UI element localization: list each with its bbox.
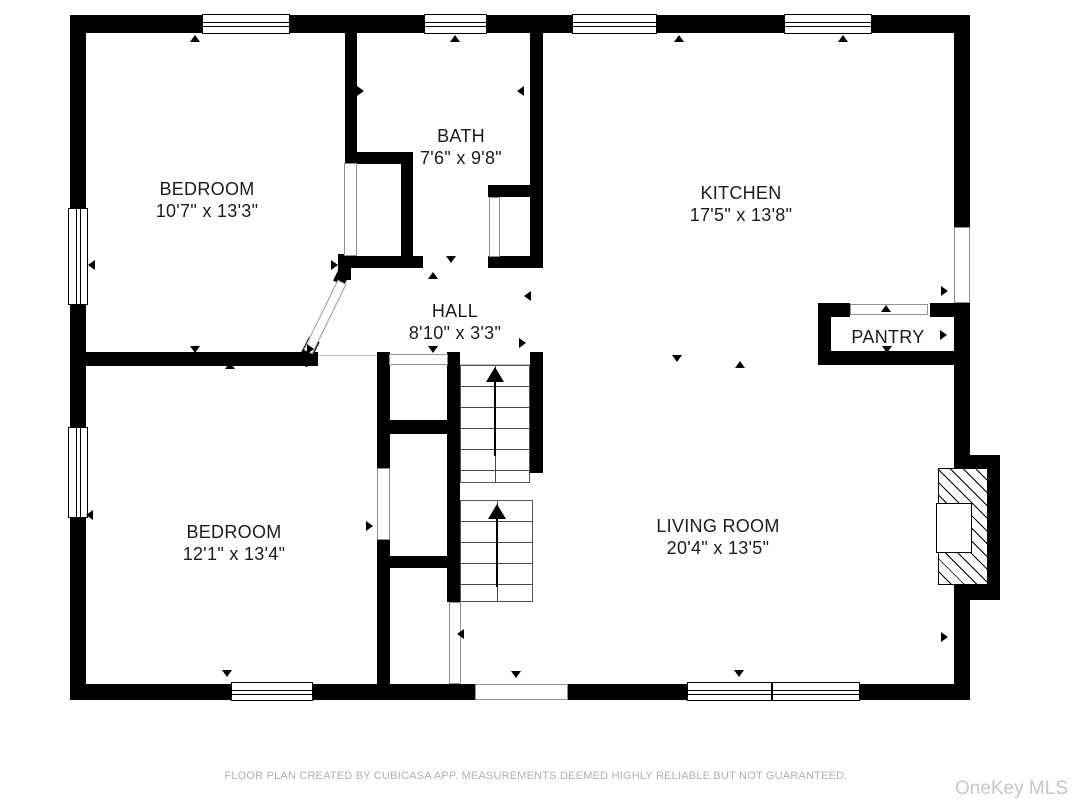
staircase-upper-flight — [460, 365, 530, 483]
window — [68, 208, 88, 305]
window — [784, 14, 872, 34]
direction-arrow — [940, 330, 947, 340]
window — [231, 682, 313, 701]
room-name: HALL — [409, 300, 501, 322]
direction-arrow — [882, 346, 892, 353]
closet-door — [449, 602, 461, 684]
direction-arrow — [941, 632, 948, 642]
direction-arrow — [735, 361, 745, 368]
direction-arrow — [838, 35, 848, 42]
room-label-hall: HALL 8'10" x 3'3" — [409, 300, 501, 344]
direction-arrow — [331, 260, 338, 270]
wall-segment — [377, 420, 460, 434]
closet-door — [344, 163, 357, 256]
direction-arrow — [446, 256, 456, 263]
direction-arrow — [881, 305, 891, 312]
direction-arrow — [519, 338, 526, 348]
direction-arrow — [190, 346, 200, 353]
direction-arrow — [674, 35, 684, 42]
room-dims: 8'10" x 3'3" — [409, 322, 501, 344]
direction-arrow — [822, 330, 829, 340]
direction-arrow — [428, 346, 438, 353]
room-dims: 10'7" x 13'3" — [156, 200, 259, 222]
wall-segment — [86, 352, 318, 366]
wall-segment — [530, 352, 543, 473]
stair-arrow — [494, 378, 496, 456]
direction-arrow — [357, 86, 364, 96]
direction-arrow — [86, 510, 93, 520]
room-name: LIVING ROOM — [656, 515, 779, 537]
room-label-bedroom-1: BEDROOM 10'7" x 13'3" — [156, 178, 259, 222]
direction-arrow — [524, 291, 531, 301]
window — [772, 682, 860, 701]
fireplace-firebox — [936, 503, 972, 553]
direction-arrow — [428, 272, 438, 279]
closet-door — [389, 354, 448, 365]
direction-arrow — [307, 344, 314, 354]
direction-arrow — [366, 521, 373, 531]
room-dims: 7'6" x 9'8" — [420, 147, 502, 169]
watermark: OneKey MLS — [955, 778, 1068, 800]
direction-arrow — [450, 35, 460, 42]
direction-arrow — [672, 355, 682, 362]
direction-arrow — [225, 362, 235, 369]
room-name: KITCHEN — [690, 182, 793, 204]
wall-segment — [377, 352, 390, 468]
exterior-door — [475, 684, 568, 700]
window — [68, 427, 88, 518]
wall-segment — [377, 556, 460, 568]
footer-disclaimer: FLOOR PLAN CREATED BY CUBICASA APP. MEAS… — [0, 770, 1072, 782]
closet-door — [377, 468, 390, 540]
room-dims: 12'1" x 13'4" — [183, 543, 286, 565]
room-name: BEDROOM — [156, 178, 259, 200]
stair-arrow — [496, 517, 498, 587]
floor-plan: BEDROOM 10'7" x 13'3" BATH 7'6" x 9'8" K… — [0, 0, 1072, 804]
threshold-line — [318, 355, 377, 356]
room-name: PANTRY — [847, 326, 929, 348]
direction-arrow — [88, 260, 95, 270]
room-label-bath: BATH 7'6" x 9'8" — [420, 125, 502, 169]
stair-arrow-head — [488, 504, 506, 519]
wall-segment — [488, 185, 532, 197]
window — [687, 682, 772, 701]
wall-segment — [930, 303, 955, 317]
direction-arrow — [457, 629, 464, 639]
room-label-living-room: LIVING ROOM 20'4" x 13'5" — [656, 515, 779, 559]
staircase-lower-flight — [460, 500, 533, 602]
direction-arrow — [190, 35, 200, 42]
direction-arrow — [511, 671, 521, 678]
room-dims: 17'5" x 13'8" — [690, 204, 793, 226]
wall-segment — [70, 15, 86, 700]
wall-segment — [818, 351, 955, 365]
room-name: BATH — [420, 125, 502, 147]
room-label-bedroom-2: BEDROOM 12'1" x 13'4" — [183, 521, 286, 565]
room-name: BEDROOM — [183, 521, 286, 543]
direction-arrow — [222, 670, 232, 677]
direction-arrow — [517, 86, 524, 96]
wall-segment — [345, 15, 357, 163]
wall-segment — [530, 15, 543, 268]
wall-segment — [348, 256, 423, 268]
window — [202, 14, 290, 34]
exterior-door — [954, 227, 970, 303]
room-dims: 20'4" x 13'5" — [656, 537, 779, 559]
room-label-kitchen: KITCHEN 17'5" x 13'8" — [690, 182, 793, 226]
wall-segment — [401, 152, 413, 268]
direction-arrow — [734, 670, 744, 677]
direction-arrow — [941, 286, 948, 296]
closet-door — [489, 197, 500, 257]
window — [572, 14, 657, 34]
stair-arrow-head — [486, 367, 504, 382]
window — [424, 14, 487, 34]
